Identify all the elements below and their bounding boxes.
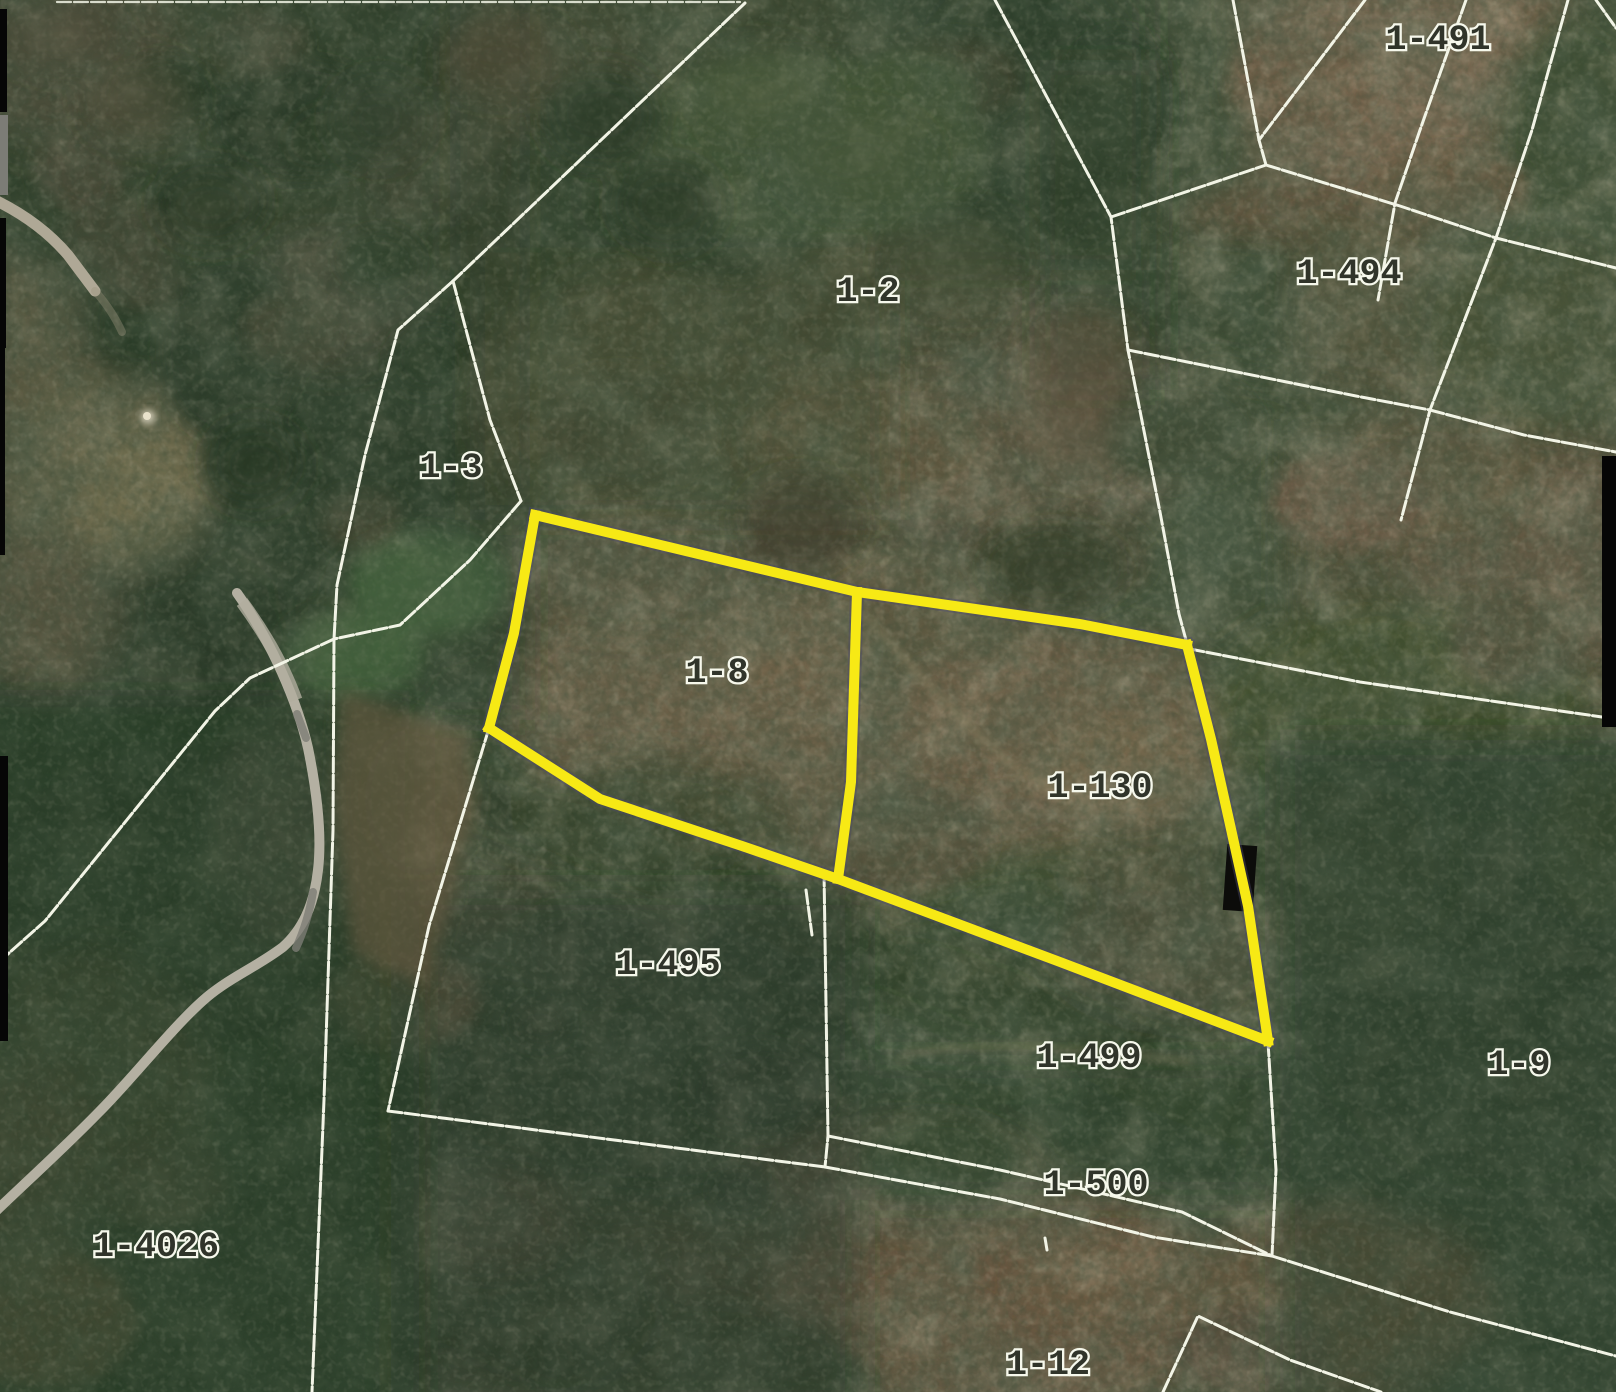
svg-text:1-12: 1-12 bbox=[1006, 1345, 1090, 1385]
svg-text:1-494: 1-494 bbox=[1296, 254, 1401, 294]
svg-text:1-500: 1-500 bbox=[1043, 1165, 1148, 1205]
svg-text:1-2: 1-2 bbox=[836, 272, 899, 312]
svg-text:1-130: 1-130 bbox=[1047, 768, 1152, 808]
svg-text:1-8: 1-8 bbox=[685, 653, 748, 693]
svg-text:1-495: 1-495 bbox=[615, 945, 720, 985]
svg-text:1-3: 1-3 bbox=[419, 448, 482, 488]
svg-text:1-491: 1-491 bbox=[1385, 20, 1490, 60]
svg-text:1-4026: 1-4026 bbox=[93, 1227, 219, 1267]
svg-text:1-499: 1-499 bbox=[1036, 1038, 1141, 1078]
svg-text:1-9: 1-9 bbox=[1487, 1045, 1550, 1085]
